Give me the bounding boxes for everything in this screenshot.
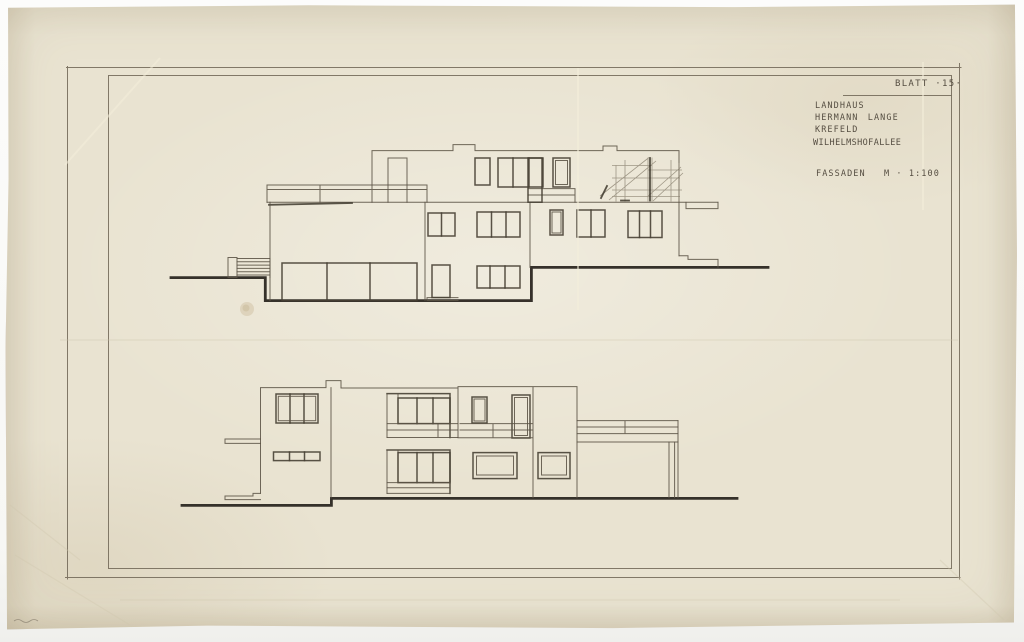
terrace-door (528, 158, 542, 202)
entry-step-slab (225, 493, 261, 499)
center-block (341, 387, 577, 498)
drawing-type-label: FASSADEN (816, 169, 866, 179)
ground-floor-door (432, 265, 450, 298)
garden-wing-walls (270, 202, 425, 300)
scale-label: M · 1:100 (884, 169, 940, 179)
middle-floor-windows (428, 210, 662, 238)
stair-bulkhead (388, 158, 407, 202)
project-title-line4: WILHELMSHOFALLEE (813, 138, 901, 148)
facade-drawing-svg (0, 0, 1024, 642)
ground-line-lower (182, 498, 737, 505)
main-block-outline (372, 145, 679, 256)
roof-slab-accent (269, 203, 352, 205)
ground-floor-glazing (282, 263, 520, 301)
garden-stairs (228, 258, 270, 278)
ground-line-upper (171, 267, 768, 300)
pergola-sketch (600, 158, 683, 202)
band-window (274, 452, 321, 461)
sheet-number: BLATT ·15· (895, 79, 962, 89)
right-wing (577, 421, 678, 498)
pencil-scribble (14, 620, 38, 623)
lower-facade-elevation (182, 381, 737, 506)
project-title-line3: KREFELD (815, 125, 859, 135)
balcony-railing (528, 189, 575, 203)
upper-facade-elevation (171, 145, 768, 301)
project-title-line2: HERMANN LANGE (815, 113, 899, 123)
project-title-line1: LANDHAUS (815, 101, 865, 111)
scan-background: BLATT ·15· LANDHAUS HERMANN LANGE KREFEL… (0, 0, 1024, 642)
left-block (225, 381, 341, 500)
wing-door-strip (669, 442, 675, 498)
upper-floor-windows (475, 158, 570, 202)
right-roof-slab (686, 202, 718, 208)
right-low-wall (679, 256, 718, 267)
terrace-railing (267, 185, 427, 202)
entry-canopy (225, 439, 261, 443)
